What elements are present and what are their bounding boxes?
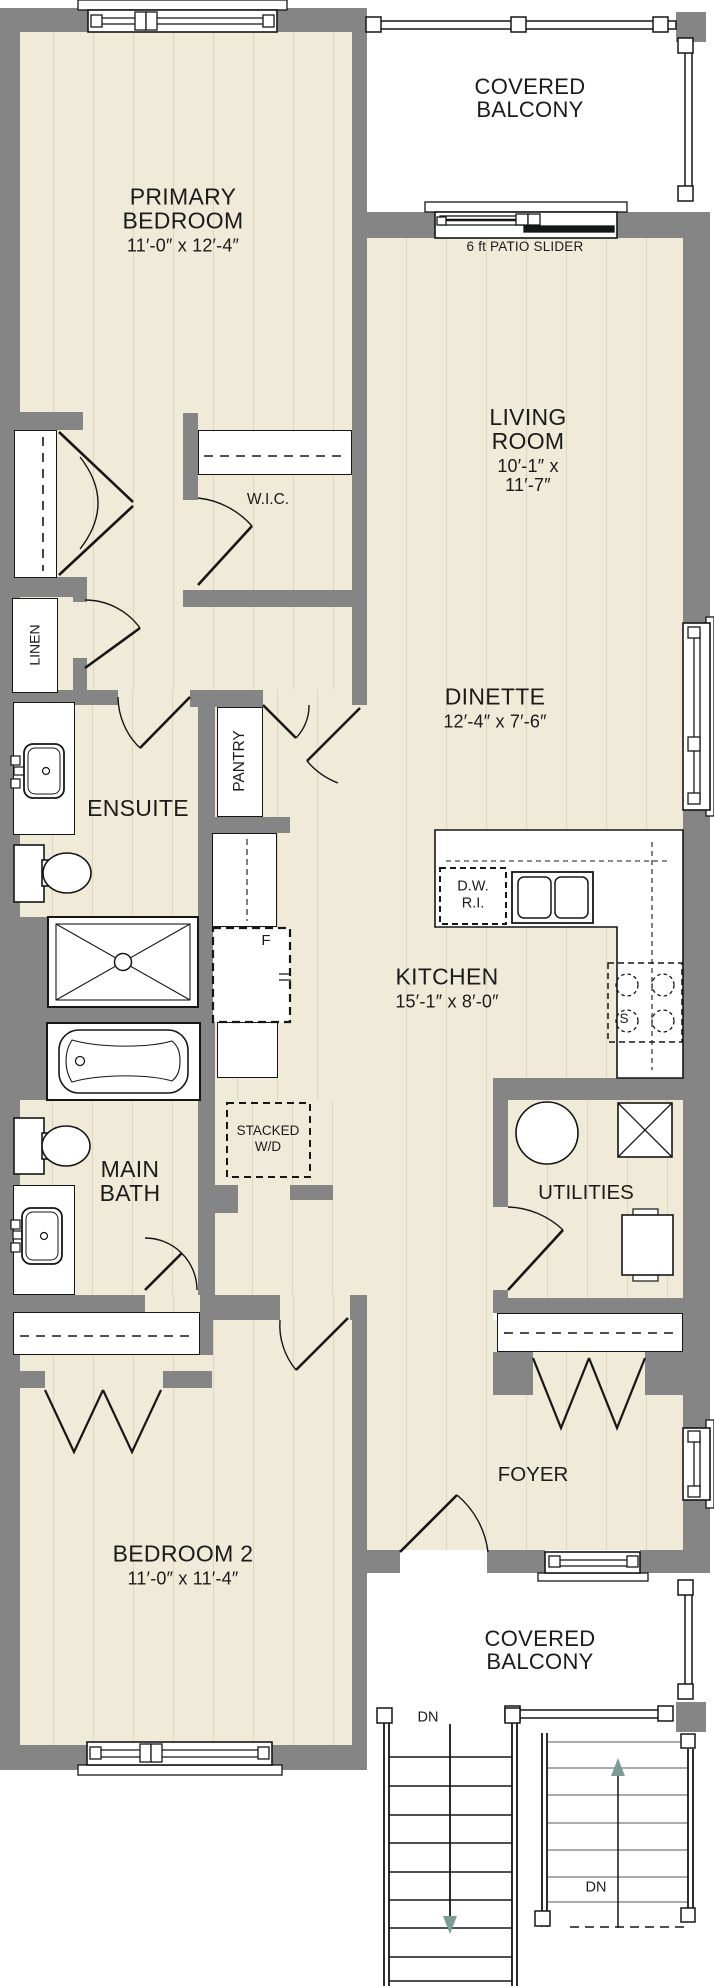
wall-shower-left — [20, 917, 48, 1007]
window-dinette-icon — [683, 617, 714, 816]
stair-down-arrow-icon — [443, 1916, 457, 1934]
window-bedroom2-icon — [78, 1742, 282, 1775]
room-name: BEDROOM 2 — [53, 1541, 313, 1565]
kitchen-counter-left — [212, 833, 277, 927]
wic-shelf — [198, 430, 352, 475]
label-covered-balcony-bottom: COVERED BALCONY — [470, 1627, 610, 1673]
wall-foyer-closet-stub-right — [645, 1352, 683, 1395]
stairs-right — [535, 1733, 695, 1928]
room-name: DINETTE — [380, 684, 610, 708]
wall-ensuite-bath-divider — [20, 1007, 198, 1023]
wall-wd-stub-left — [213, 1185, 238, 1213]
room-name: KITCHEN — [332, 964, 562, 988]
wall-wic-bottom — [183, 590, 352, 607]
window-foyer-bottom-icon — [538, 1552, 648, 1581]
wall-wic-left — [183, 413, 198, 500]
wall-tub-left — [20, 1023, 47, 1100]
wall-br2-bottom-left — [0, 1745, 88, 1770]
wall-foyer-closet-stub-left — [493, 1352, 533, 1395]
patio-slider-icon — [425, 202, 627, 238]
bedroom2-closet — [13, 1312, 200, 1355]
wall-br2-closet-stub-right — [163, 1371, 212, 1388]
label-foyer: FOYER — [433, 1464, 633, 1486]
label-stairs-dn-right: DN — [586, 1880, 607, 1895]
label-dishwasher-roughin: D.W. R.I. — [446, 879, 500, 914]
label-main-bath: MAIN BATH — [75, 1157, 185, 1205]
primary-closet — [14, 430, 57, 578]
floor-utilities-doorway — [493, 1207, 508, 1290]
label-utilities: UTILITIES — [476, 1182, 696, 1204]
room-name: COVERED BALCONY — [460, 75, 600, 121]
wall-balcony-slider-right — [617, 212, 710, 238]
label-fridge: F — [261, 933, 270, 949]
wall-foyer-bottom-b — [487, 1550, 545, 1573]
room-name: PRIMARY BEDROOM — [98, 184, 268, 232]
wall-divider — [352, 8, 367, 705]
label-patio-slider: 6 ft PATIO SLIDER — [375, 240, 675, 254]
wall-kitchen-bottom — [493, 1078, 710, 1100]
label-covered-balcony-top: COVERED BALCONY — [460, 75, 600, 121]
room-name: COVERED BALCONY — [470, 1627, 610, 1673]
wall-br2-closet-right — [200, 1302, 213, 1355]
floor-foyer-corridor — [367, 1078, 493, 1320]
floor-plan: PRIMARY BEDROOM 11′-0″ x 12′-4″ COVERED … — [0, 0, 714, 1986]
wall-br2-closet-stub-left — [12, 1371, 45, 1388]
room-dims: 11′-0″ x 12′-4″ — [98, 237, 268, 256]
room-dims: 15′-1″ x 8′-0″ — [332, 993, 562, 1012]
wall-br2-bottom-right — [272, 1745, 367, 1770]
stair-up-arrow-icon — [611, 1758, 625, 1776]
room-name: LIVING ROOM — [473, 405, 583, 453]
room-dims: 10′-1″ x 11′-7″ — [473, 457, 583, 495]
label-kitchen: KITCHEN 15′-1″ x 8′-0″ — [332, 964, 562, 1011]
label-pantry: PANTRY — [232, 730, 248, 791]
wall-right-upper — [683, 238, 710, 623]
wall-linen-jamb-bottom — [73, 658, 87, 690]
label-ensuite: ENSUITE — [28, 796, 248, 820]
label-primary-bedroom: PRIMARY BEDROOM 11′-0″ x 12′-4″ — [98, 184, 268, 255]
room-dims: 12′-4″ x 7′-6″ — [380, 713, 610, 732]
label-living-room: LIVING ROOM 10′-1″ x 11′-7″ — [473, 405, 583, 495]
label-wic: W.I.C. — [218, 492, 318, 508]
label-dinette: DINETTE 12′-4″ x 7′-6″ — [380, 684, 610, 731]
stairs-left — [377, 1708, 520, 1986]
window-foyer-right-icon — [683, 1420, 714, 1508]
wall-right-middle — [683, 810, 710, 1428]
wall-utilities-bottom — [493, 1298, 683, 1313]
label-stove: S — [619, 1012, 628, 1026]
kitchen-counter-left-lower — [217, 1022, 278, 1078]
wall-foyer-bottom-a — [367, 1550, 400, 1573]
label-stairs-dn-left: DN — [418, 1710, 439, 1725]
wall-foyer-bottom-c — [640, 1550, 710, 1573]
foyer-closet — [497, 1313, 683, 1352]
wall-top-left — [0, 8, 88, 32]
balcony-post-top-corner — [676, 12, 706, 42]
wall-linen-jamb-top — [73, 577, 87, 602]
wall-left-exterior — [0, 28, 20, 1770]
floor-living-dinette-kitchen — [367, 238, 683, 1078]
floor-bedroom2 — [14, 1295, 352, 1745]
wall-wd-stub-right — [290, 1185, 333, 1200]
label-bedroom2: BEDROOM 2 11′-0″ x 11′-4″ — [53, 1541, 313, 1588]
label-linen: LINEN — [28, 624, 43, 665]
wall-balcony-slider-left — [367, 212, 435, 238]
balcony-post-bottom-corner — [676, 1702, 706, 1732]
wall-br2-right — [352, 1295, 367, 1770]
main-vanity — [13, 1185, 75, 1295]
wall-pbed-bottom — [14, 412, 83, 430]
label-stacked-wd: STACKED W/D — [222, 1123, 314, 1155]
room-dims: 11′-0″ x 11′-4″ — [53, 1570, 313, 1589]
